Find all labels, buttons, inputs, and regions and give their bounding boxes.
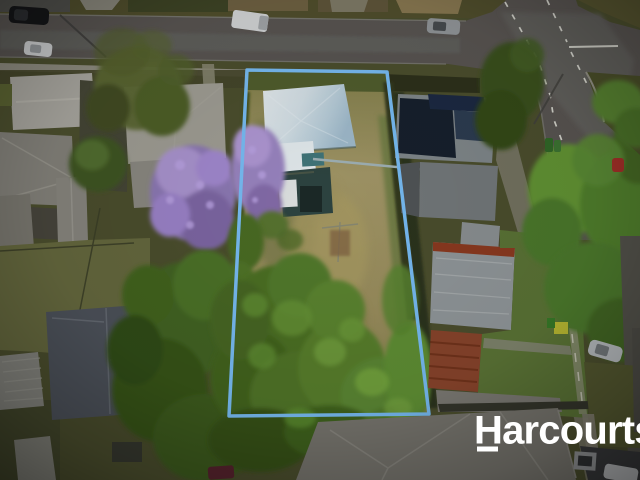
svg-text:Harcourts: Harcourts [474,409,640,453]
